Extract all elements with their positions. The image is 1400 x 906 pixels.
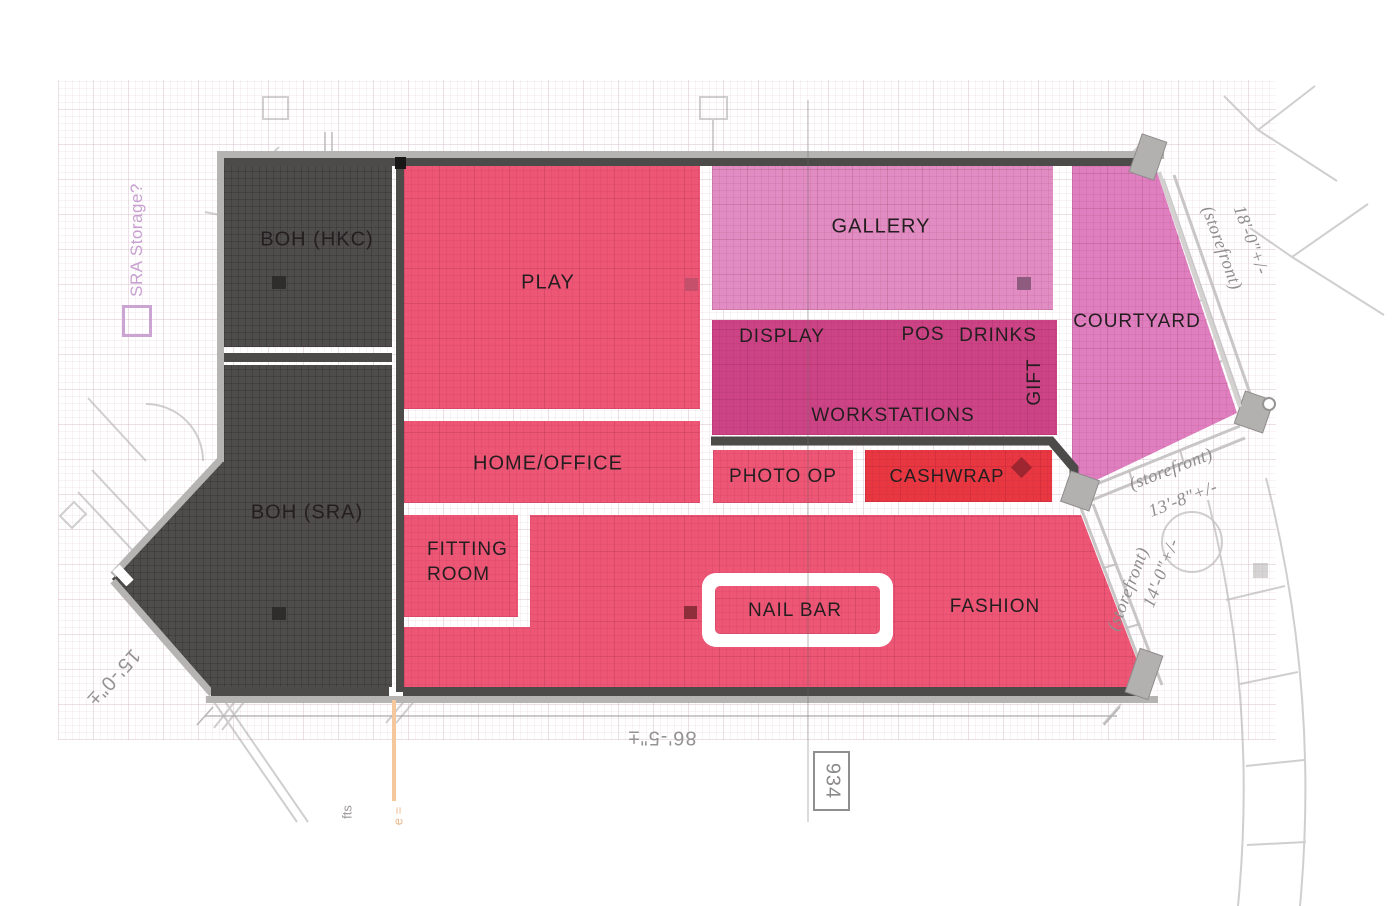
zone-label-boh-sra: BOH (SRA)	[251, 502, 363, 525]
zone-label-play: PLAY	[521, 272, 575, 295]
zone-label-photo-op: PHOTO OP	[729, 466, 837, 488]
zone-label-drinks: DRINKS	[959, 325, 1037, 347]
zone-label-home-office: HOME/OFFICE	[473, 453, 623, 476]
zone-label-fashion: FASHION	[950, 596, 1040, 618]
sra-storage-note: SRA Storage?	[127, 183, 147, 297]
zone-label-pos: POS	[901, 324, 944, 346]
dimension-bottom: 86'-5"±	[628, 726, 697, 749]
storefront-corner-post	[1061, 471, 1100, 511]
zone-label-display: DISPLAY	[739, 326, 825, 348]
zone-label-cashwrap: CASHWRAP	[890, 465, 1005, 487]
note-fts: fts	[340, 805, 355, 819]
storefront-corner-post	[1125, 648, 1163, 699]
zone-label-boh-hkc: BOH (HKC)	[260, 229, 373, 252]
zone-label-fitting-room: FITTING ROOM	[427, 538, 522, 587]
door-number-tag: 934	[813, 751, 850, 811]
zone-label-courtyard: COURTYARD	[1073, 311, 1201, 333]
door-number: 934	[820, 763, 843, 799]
floor-plan-canvas: BOH (HKC) BOH (SRA) PLAY GALLERY COURTYA…	[0, 0, 1400, 906]
zone-label-nail-bar: NAIL BAR	[748, 600, 842, 622]
zone-label-gift: GIFT	[1024, 358, 1046, 405]
note-orange: e =	[391, 807, 406, 825]
zone-label-workstations: WORKSTATIONS	[811, 405, 974, 427]
zone-label-gallery: GALLERY	[832, 216, 931, 239]
boh-demising-wall	[396, 162, 404, 692]
